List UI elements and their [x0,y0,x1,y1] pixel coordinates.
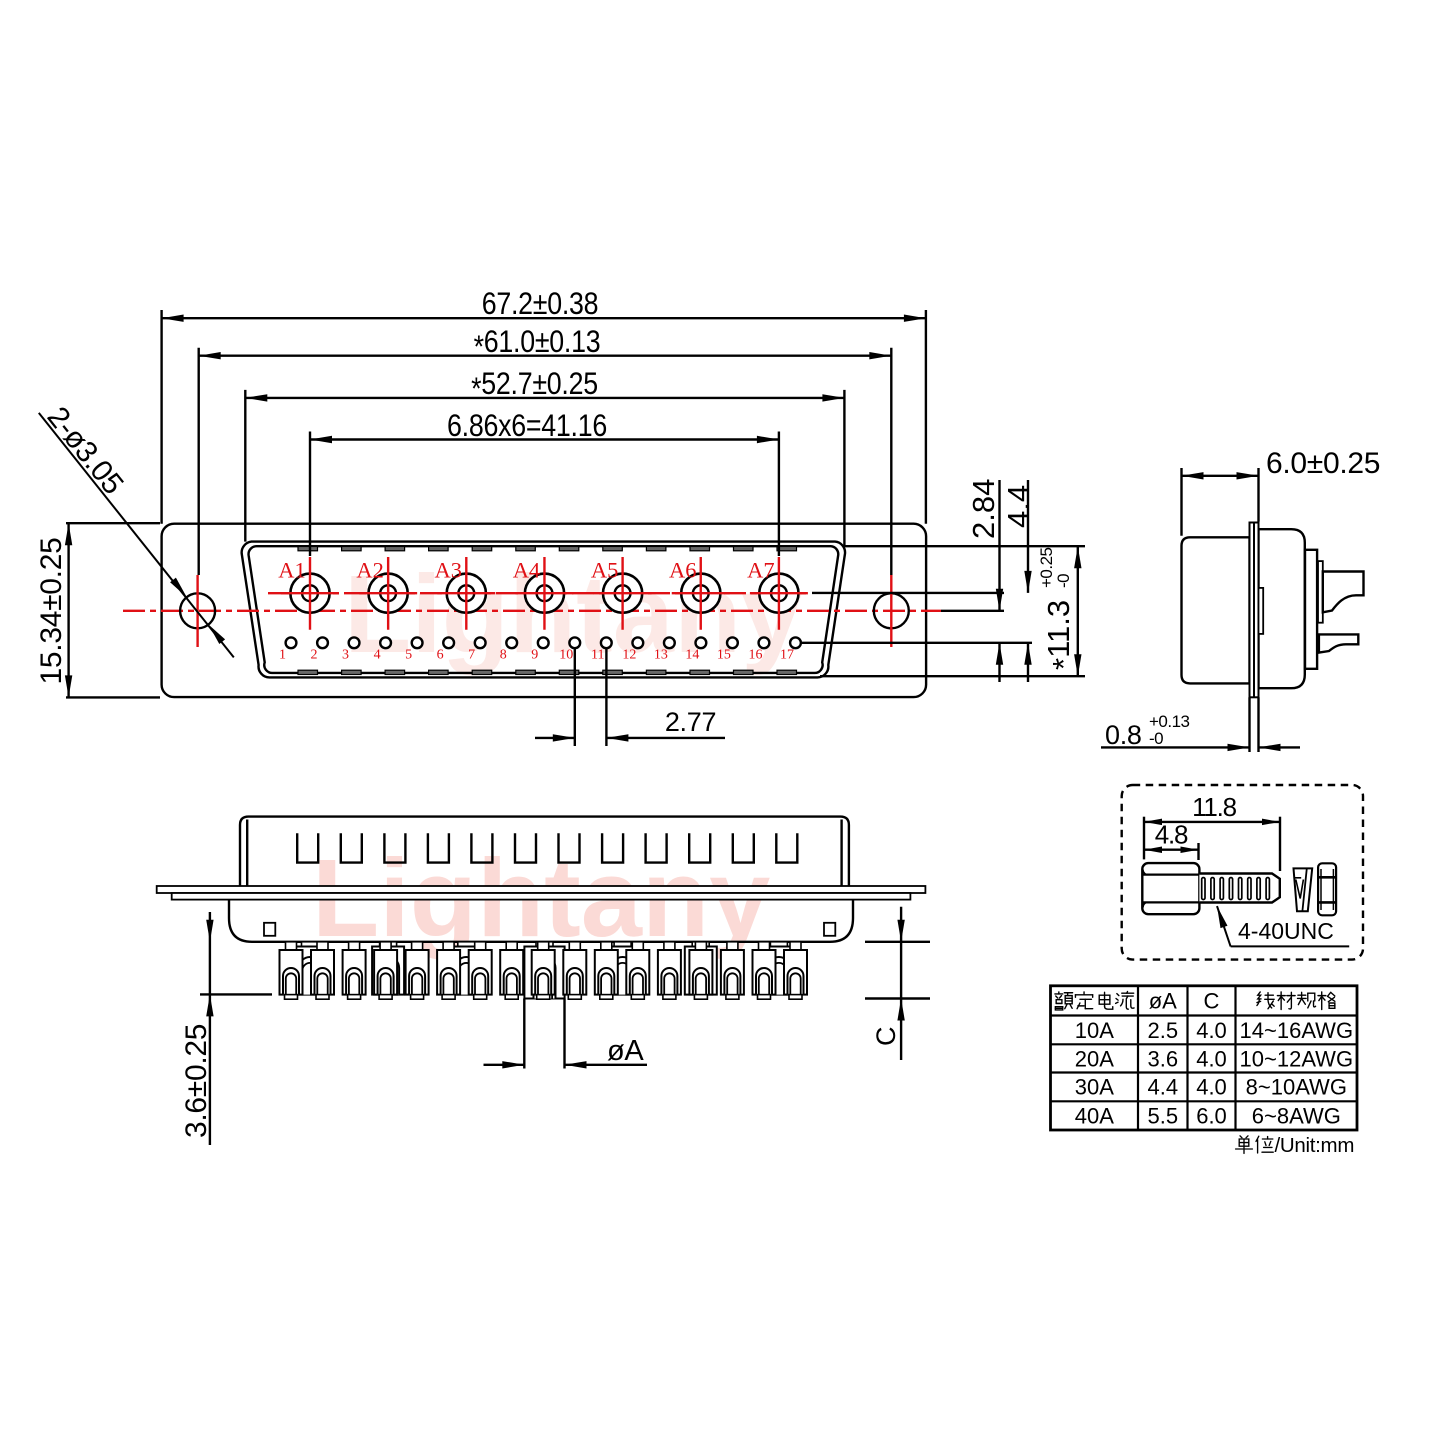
svg-text:A7: A7 [747,558,775,583]
svg-text:6.0: 6.0 [1196,1103,1227,1128]
svg-text:3.6±0.25: 3.6±0.25 [180,1024,213,1138]
svg-text:11: 11 [591,648,604,663]
svg-text:4-40UNC: 4-40UNC [1238,918,1334,944]
svg-text:13: 13 [654,648,668,663]
svg-text:14: 14 [685,648,699,663]
svg-text:11.8: 11.8 [1192,792,1237,822]
svg-text:A3: A3 [435,558,463,583]
svg-text:A6: A6 [669,558,697,583]
svg-text:4.4: 4.4 [1148,1075,1179,1100]
svg-text:15.34±0.25: 15.34±0.25 [35,538,68,685]
svg-text:2.5: 2.5 [1148,1018,1179,1043]
svg-text:1: 1 [279,648,286,663]
svg-text:A2: A2 [356,558,384,583]
svg-text:12: 12 [622,648,636,663]
svg-text:20A: 20A [1075,1046,1114,1071]
svg-text:3.6: 3.6 [1148,1046,1179,1071]
svg-text:A5: A5 [591,558,619,583]
svg-text:5: 5 [405,648,412,663]
svg-text:C: C [1204,989,1220,1014]
svg-text:2: 2 [311,648,318,663]
svg-text:4: 4 [374,648,381,663]
svg-text:*11.3: *11.3 [1041,600,1081,670]
svg-text:30A: 30A [1075,1075,1114,1100]
svg-text:C: C [871,1027,901,1046]
svg-text:8: 8 [500,648,507,663]
svg-text:6.0±0.25: 6.0±0.25 [1266,447,1380,480]
svg-text:*52.7±0.25: *52.7±0.25 [471,367,598,406]
svg-text:6: 6 [437,648,444,663]
svg-text:4.0: 4.0 [1196,1018,1227,1043]
svg-text:/Unit:mm: /Unit:mm [1275,1134,1355,1157]
svg-text:øA: øA [1149,989,1177,1014]
svg-text:4.8: 4.8 [1155,820,1188,850]
svg-text:10~12AWG: 10~12AWG [1240,1046,1354,1071]
svg-text:0.8: 0.8 [1105,720,1142,750]
svg-text:4.0: 4.0 [1196,1046,1227,1071]
svg-text:A4: A4 [513,558,541,583]
svg-text:*61.0±0.13: *61.0±0.13 [474,325,601,364]
svg-text:-0: -0 [1054,574,1073,588]
svg-text:-0: -0 [1149,729,1163,748]
svg-text:9: 9 [531,648,538,663]
svg-text:16: 16 [748,648,762,663]
svg-text:10A: 10A [1075,1018,1114,1043]
svg-text:6~8AWG: 6~8AWG [1252,1103,1341,1128]
svg-text:4.0: 4.0 [1196,1075,1227,1100]
svg-text:15: 15 [717,648,731,663]
svg-text:10: 10 [559,648,573,663]
svg-text:17: 17 [780,648,794,663]
svg-text:A1: A1 [278,558,306,583]
svg-text:67.2±0.38: 67.2±0.38 [482,287,599,321]
svg-text:3: 3 [342,648,349,663]
svg-text:6.86x6=41.16: 6.86x6=41.16 [447,409,607,443]
svg-text:14~16AWG: 14~16AWG [1240,1018,1354,1043]
svg-text:40A: 40A [1075,1103,1114,1128]
svg-text:7: 7 [468,648,475,663]
svg-text:øA: øA [607,1035,644,1067]
svg-text:2.77: 2.77 [665,707,716,737]
svg-text:2.84: 2.84 [966,479,1001,539]
svg-text:8~10AWG: 8~10AWG [1246,1075,1347,1100]
svg-text:5.5: 5.5 [1148,1103,1179,1128]
svg-text:4.4: 4.4 [1001,485,1036,528]
